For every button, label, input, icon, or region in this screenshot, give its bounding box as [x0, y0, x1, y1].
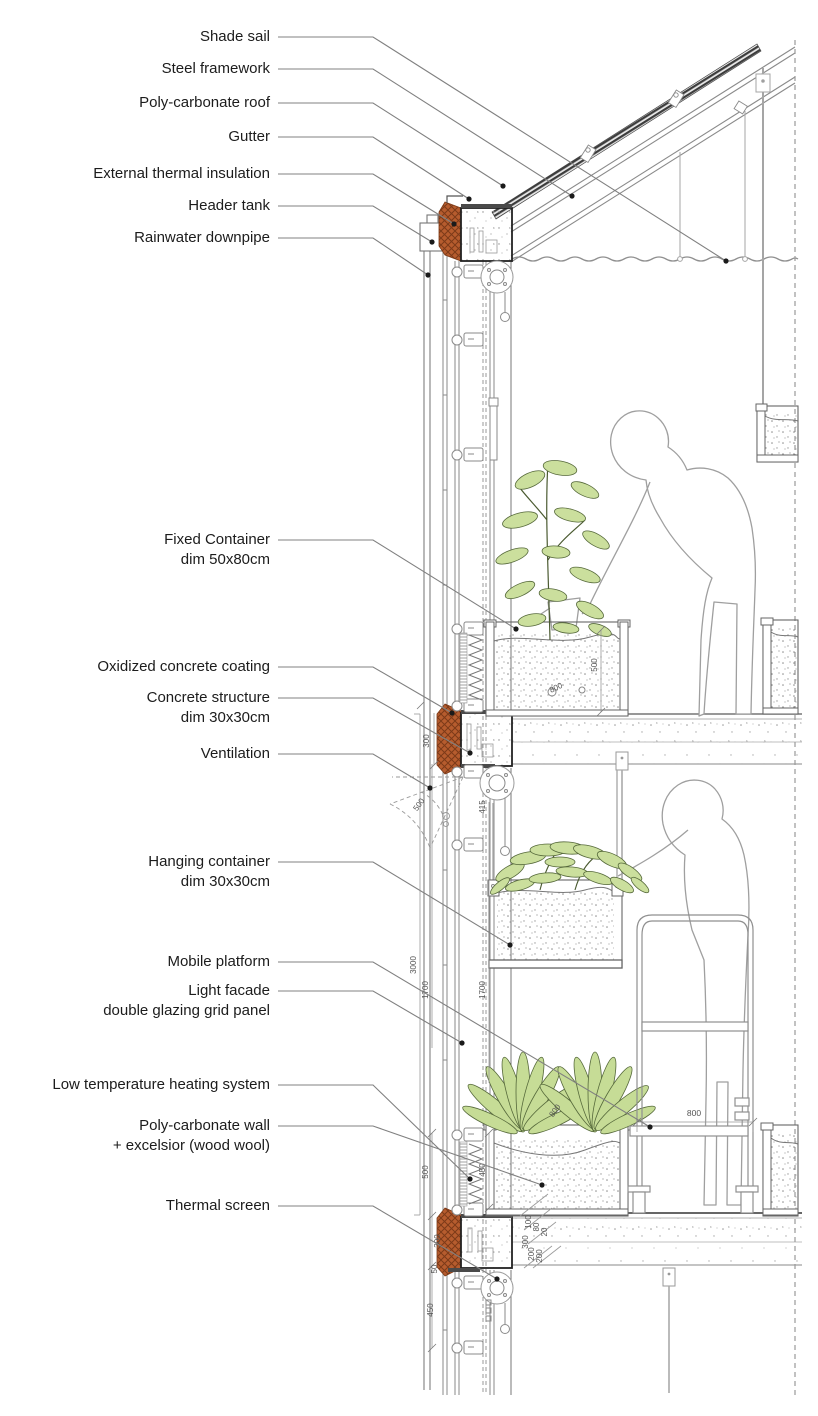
dim-low-glass: 500 [421, 1165, 430, 1179]
callout-shade-sail: Shade sail [0, 27, 270, 47]
callout-label: Hanging container [0, 852, 270, 872]
callout-steel-framework: Steel framework [0, 59, 270, 79]
callout-light-facade: Light facadedouble glazing grid panel [0, 981, 270, 1021]
callout-label: Light facade [0, 981, 270, 1001]
polycarbonate-roof [492, 44, 761, 219]
callout-header-tank: Header tank [0, 196, 270, 216]
callout-label: Steel framework [0, 59, 270, 79]
callout-ventilation: Ventilation [0, 744, 270, 764]
bottom-floor-slab [512, 1213, 802, 1393]
callout-label: Poly-carbonate wall [0, 1116, 270, 1136]
dim-fl-200b: 200 [535, 1249, 544, 1263]
callout-label: Concrete structure [0, 688, 270, 708]
dim-fl-300: 300 [521, 1235, 530, 1249]
callout-thermal-screen: Thermal screen [0, 1196, 270, 1216]
callout-label: Ventilation [0, 744, 270, 764]
steel-framework [511, 47, 795, 262]
callout-sublabel: dim 30x30cm [0, 708, 270, 728]
callout-hanging-container: Hanging containerdim 30x30cm [0, 852, 270, 892]
ventilation-fan [390, 777, 463, 848]
top-node [439, 196, 512, 261]
callout-polycarbonate-wall: Poly-carbonate wall+ excelsior (wood woo… [0, 1116, 270, 1156]
callout-fixed-container: Fixed Containerdim 50x80cm [0, 530, 270, 570]
callout-label: Rainwater downpipe [0, 228, 270, 248]
callout-label: Thermal screen [0, 1196, 270, 1216]
dim-below: 450 [426, 1303, 435, 1317]
facade-section-drawing: 300 500 3000 1700 1700 500 800 415 500 4… [0, 0, 818, 1416]
callout-sublabel: + excelsior (wood wool) [0, 1136, 270, 1156]
plant-hanging [488, 840, 651, 896]
callout-rainwater-downpipe: Rainwater downpipe [0, 228, 270, 248]
person-lower [618, 780, 749, 1205]
dim-glazing-b: 1700 [478, 981, 487, 999]
dim-mid-node: 300 [422, 734, 431, 748]
dim-story: 3000 [409, 956, 418, 974]
dim-container-h: 500 [590, 658, 599, 672]
callout-label: Header tank [0, 196, 270, 216]
fixed-container-right [761, 618, 798, 714]
callout-external-insulation: External thermal insulation [0, 164, 270, 184]
sail-hangers [678, 111, 748, 261]
callout-label: Low temperature heating system [0, 1075, 270, 1095]
callout-label: External thermal insulation [0, 164, 270, 184]
callout-oxidized-coating: Oxidized concrete coating [0, 657, 270, 677]
callout-sublabel: double glazing grid panel [0, 1001, 270, 1021]
screen-batten [489, 398, 498, 460]
callout-gutter: Gutter [0, 127, 270, 147]
callout-label: Gutter [0, 127, 270, 147]
dim-platform-w: 800 [687, 1108, 701, 1118]
callout-sublabel: dim 30x30cm [0, 872, 270, 892]
callout-sublabel: dim 50x80cm [0, 550, 270, 570]
callout-heating-system: Low temperature heating system [0, 1075, 270, 1095]
hanging-container-right [756, 404, 798, 462]
roof-clamps [580, 90, 747, 162]
container-suspension-rod [756, 68, 770, 406]
callout-polycarbonate-roof: Poly-carbonate roof [0, 93, 270, 113]
callout-label: Mobile platform [0, 952, 270, 972]
heating-coil-upper [460, 633, 482, 703]
dim-gap: 50 [430, 1264, 439, 1273]
callout-concrete-structure: Concrete structuredim 30x30cm [0, 688, 270, 728]
middle-floor-slab [512, 714, 802, 882]
fixed-container-bottom-right [761, 1123, 798, 1216]
callout-label: Oxidized concrete coating [0, 657, 270, 677]
callout-mobile-platform: Mobile platform [0, 952, 270, 972]
shade-sail [512, 257, 798, 261]
callout-label: Shade sail [0, 27, 270, 47]
fixed-container-bottom [484, 1123, 630, 1216]
dim-hang: 415 [478, 800, 487, 814]
callout-label: Poly-carbonate roof [0, 93, 270, 113]
dim-fl-20: 20 [540, 1227, 549, 1236]
floor-slabs [512, 714, 802, 1393]
dim-glazing-a: 1700 [421, 981, 430, 999]
callout-label: Fixed Container [0, 530, 270, 550]
